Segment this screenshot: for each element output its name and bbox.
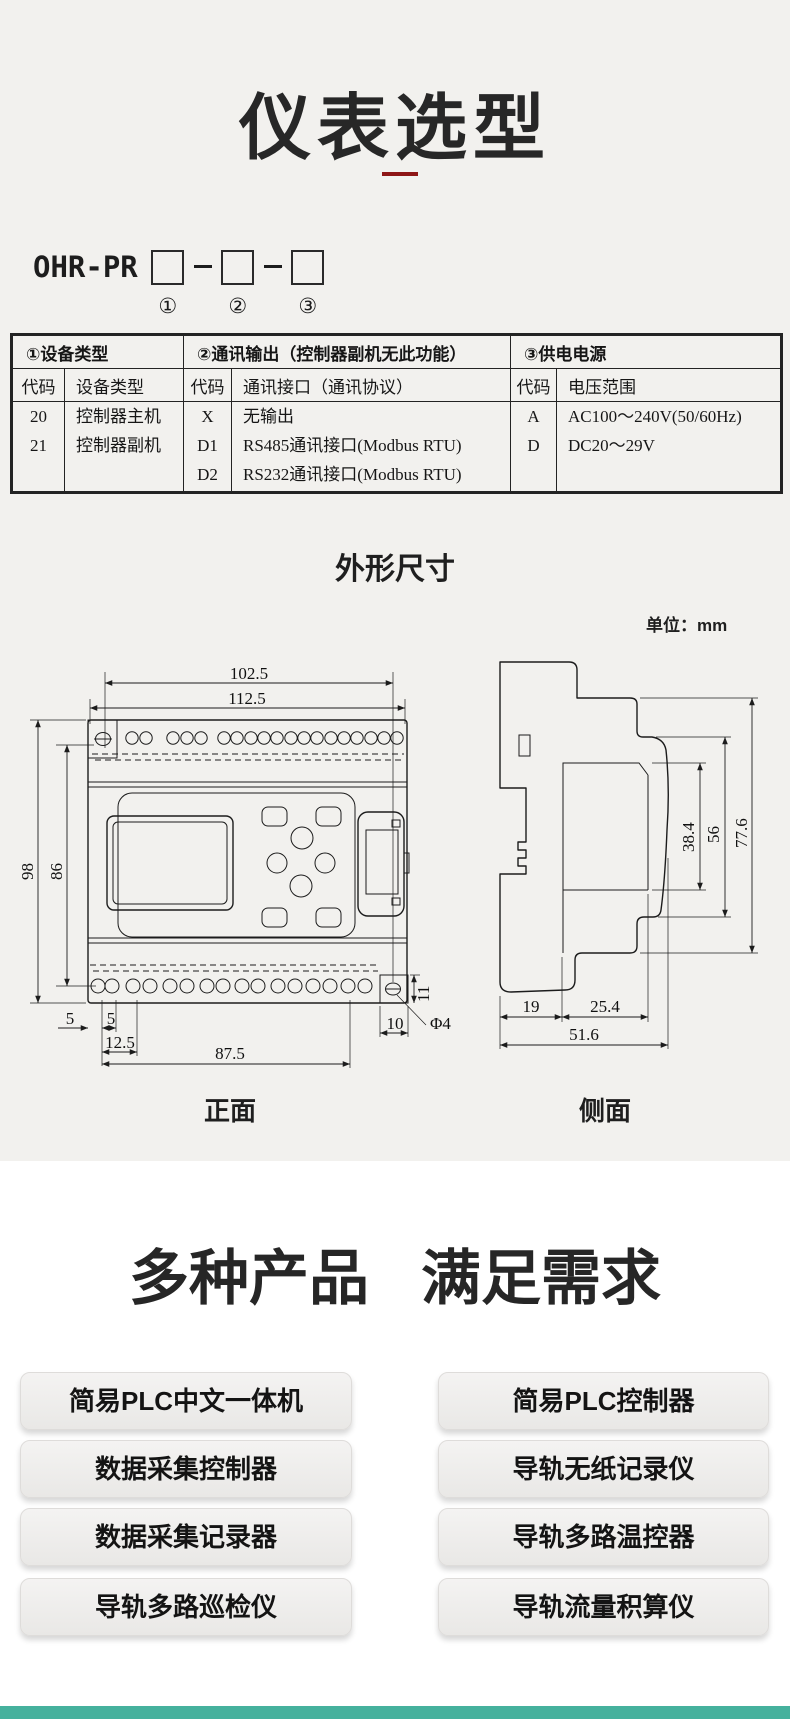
product-button-data-controller[interactable]: 数据采集控制器 — [20, 1440, 352, 1498]
lcd-screen — [107, 816, 233, 910]
side-dimension-38-4: 38.4 — [652, 763, 706, 890]
bottom-terminal-circles — [91, 979, 372, 993]
dim-56: 56 — [704, 826, 723, 843]
power-desc-dc: DC20～29V — [568, 431, 780, 460]
side-dimension-77-6: 77.6 — [640, 698, 758, 953]
side-front-panel — [563, 763, 648, 953]
model-code-row: OHR-PR ① ② ③ — [33, 250, 324, 318]
dim-77-6: 77.6 — [732, 818, 751, 848]
dim-98: 98 — [18, 863, 37, 880]
product-button-paperless-recorder[interactable]: 导轨无纸记录仪 — [438, 1440, 769, 1498]
device-type-slave: 控制器副机 — [76, 431, 183, 460]
front-dimension-10: 10 — [380, 1006, 408, 1037]
front-view-label: 正面 — [170, 1091, 290, 1128]
keypad-buttons — [262, 807, 341, 927]
power-desc-cell: AC100～240V(50/60Hz) DC20～29V — [557, 402, 782, 493]
product-button-data-recorder[interactable]: 数据采集记录器 — [20, 1508, 352, 1566]
circled-number-1: ① — [158, 296, 177, 318]
dim-5a: 5 — [66, 1009, 75, 1028]
group-header-comm: ②通讯输出（控制器副机无此功能） — [184, 335, 511, 369]
comm-desc-rs485: RS485通讯接口(Modbus RTU) — [243, 431, 510, 460]
dim-25-4: 25.4 — [590, 997, 620, 1016]
front-dimension-87-5: 87.5 — [102, 1000, 350, 1068]
group-header-power: ③供电电源 — [511, 335, 782, 369]
table-group-header-row: ①设备类型 ②通讯输出（控制器副机无此功能） ③供电电源 — [12, 335, 782, 369]
comm-desc-none: 无输出 — [243, 402, 510, 431]
side-dimension-19: 19 — [500, 957, 562, 1049]
dim-19: 19 — [523, 997, 540, 1016]
dim-86: 86 — [47, 863, 66, 880]
dim-87-5: 87.5 — [215, 1044, 245, 1063]
front-view-drawing: 102.5 112.5 98 86 5 — [18, 664, 451, 1068]
comm-desc-cell: 无输出 RS485通讯接口(Modbus RTU) RS232通讯接口(Modb… — [232, 402, 511, 493]
comm-desc-rs232: RS232通讯接口(Modbus RTU) — [243, 460, 510, 489]
dim-112-5: 112.5 — [228, 689, 266, 708]
col-header-voltage: 电压范围 — [557, 369, 782, 402]
footer-accent-bar — [0, 1706, 790, 1719]
side-view-label: 侧面 — [545, 1091, 665, 1128]
code-box-2 — [221, 250, 254, 285]
dim-38-4: 38.4 — [679, 822, 698, 852]
dim-102-5: 102.5 — [230, 664, 268, 683]
products-heading: 多种产品 满足需求 — [0, 1230, 790, 1317]
side-connector-port — [358, 812, 409, 916]
table-body-row: 20 21 控制器主机 控制器副机 X D1 D2 无输出 RS485通讯接口(… — [12, 402, 782, 493]
products-heading-right: 满足需求 — [421, 1230, 661, 1317]
bottom-vent-zigzag — [90, 965, 378, 971]
col-header-code3: 代码 — [511, 369, 557, 402]
product-button-plc-controller[interactable]: 简易PLC控制器 — [438, 1372, 769, 1430]
front-dimension-98: 98 — [18, 720, 86, 1003]
comm-code-d2: D2 — [184, 460, 231, 489]
dimension-drawings: 102.5 112.5 98 86 5 — [0, 595, 790, 1140]
col-header-comm-port: 通讯接口（通讯协议） — [232, 369, 511, 402]
col-header-code2: 代码 — [184, 369, 232, 402]
comm-code-cell: X D1 D2 — [184, 402, 232, 493]
circled-number-3: ③ — [298, 296, 317, 318]
dim-12-5: 12.5 — [105, 1033, 135, 1052]
code-slot-1: ① — [152, 250, 184, 318]
device-type-master: 控制器主机 — [76, 402, 183, 431]
device-type-cell: 控制器主机 控制器副机 — [65, 402, 184, 493]
front-dimension-112-5: 112.5 — [90, 689, 405, 724]
model-prefix: OHR-PR — [33, 250, 138, 284]
power-code-cell: A D — [511, 402, 557, 493]
front-dimension-5a: 5 — [58, 1009, 88, 1028]
product-button-flow-totalizer[interactable]: 导轨流量积算仪 — [438, 1578, 769, 1636]
product-button-plc-allinone[interactable]: 简易PLC中文一体机 — [20, 1372, 352, 1430]
power-code-d: D — [511, 431, 556, 460]
dim-11: 11 — [414, 986, 433, 1002]
code-box-1 — [151, 250, 184, 285]
product-button-multichannel-inspector[interactable]: 导轨多路巡检仪 — [20, 1578, 352, 1636]
code-dash-2 — [264, 265, 282, 268]
power-desc-ac: AC100～240V(50/60Hz) — [568, 402, 780, 431]
code-slot-3: ③ — [292, 250, 324, 318]
code-slot-2: ② — [222, 250, 254, 318]
side-view-drawing: 38.4 56 77.6 19 — [500, 662, 758, 1049]
dim-10: 10 — [387, 1014, 404, 1033]
top-terminal-circles — [126, 732, 403, 744]
device-code-cell: 20 21 — [12, 402, 65, 493]
title-accent-dash — [382, 172, 418, 176]
col-header-device-type: 设备类型 — [65, 369, 184, 402]
code-box-3 — [291, 250, 324, 285]
product-button-temp-controller[interactable]: 导轨多路温控器 — [438, 1508, 769, 1566]
dim-phi4: Φ4 — [430, 1014, 451, 1033]
page-title: 仪表选型 — [0, 90, 790, 169]
product-page: 仪表选型 OHR-PR ① ② ③ ①设备类型 ②通讯输出（控制器副机无此功能）… — [0, 0, 790, 1719]
power-code-a: A — [511, 402, 556, 431]
front-dimension-11: 11 — [410, 975, 433, 1003]
comm-code-x: X — [184, 402, 231, 431]
selection-table: ①设备类型 ②通讯输出（控制器副机无此功能） ③供电电源 代码 设备类型 代码 … — [10, 333, 783, 494]
device-code-20: 20 — [13, 402, 64, 431]
group-header-device: ①设备类型 — [12, 335, 184, 369]
products-heading-left: 多种产品 — [129, 1230, 369, 1317]
top-vent-zigzag — [92, 754, 404, 760]
code-dash-1 — [194, 265, 212, 268]
circled-number-2: ② — [228, 296, 247, 318]
comm-code-d1: D1 — [184, 431, 231, 460]
col-header-code1: 代码 — [12, 369, 65, 402]
dimensions-heading: 外形尺寸 — [0, 544, 790, 588]
table-subheader-row: 代码 设备类型 代码 通讯接口（通讯协议） 代码 电压范围 — [12, 369, 782, 402]
dim-5b: 5 — [107, 1009, 116, 1028]
dim-51-6: 51.6 — [569, 1025, 599, 1044]
device-code-21: 21 — [13, 431, 64, 460]
